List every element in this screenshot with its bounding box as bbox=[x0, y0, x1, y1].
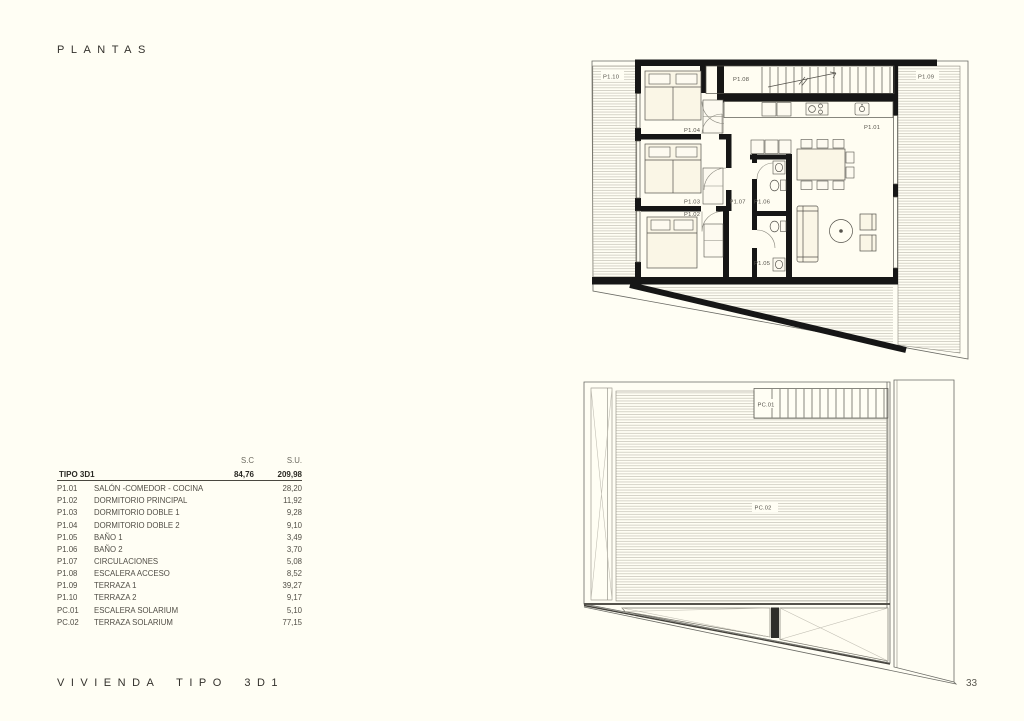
row-name: DORMITORIO DOBLE 2 bbox=[92, 521, 206, 530]
room-label-p109: P1.09 bbox=[918, 75, 934, 81]
hob-icon bbox=[806, 103, 828, 115]
row-name: TERRAZA 1 bbox=[92, 581, 206, 590]
bottom-edge-line bbox=[584, 603, 890, 605]
total-sc: 84,76 bbox=[206, 470, 254, 479]
area-table-total-row: TIPO 3D1 84,76 209,98 bbox=[57, 465, 302, 481]
row-su: 9,10 bbox=[254, 521, 302, 530]
pergola-panel-left bbox=[622, 608, 770, 637]
row-name: CIRCULACIONES bbox=[92, 557, 206, 566]
table-row: P1.06BAÑO 23,70 bbox=[57, 542, 302, 554]
row-code: P1.05 bbox=[57, 533, 92, 542]
sofa bbox=[797, 206, 818, 262]
table-row: P1.02DORMITORIO PRINCIPAL11,92 bbox=[57, 493, 302, 505]
area-table: S.C S.U. TIPO 3D1 84,76 209,98 P1.01SALÓ… bbox=[57, 452, 302, 627]
row-name: BAÑO 1 bbox=[92, 533, 206, 542]
row-name: DORMITORIO PRINCIPAL bbox=[92, 496, 206, 505]
table-row: P1.04DORMITORIO DOBLE 29,10 bbox=[57, 517, 302, 529]
room-label-p106: P1.06 bbox=[754, 200, 770, 206]
floor-plan-solarium: PC.01 PC.02 bbox=[580, 375, 975, 695]
room-label-p103: P1.03 bbox=[684, 200, 700, 206]
room-label-pc02: PC.02 bbox=[755, 506, 772, 512]
row-name: ESCALERA ACCESO bbox=[92, 569, 206, 578]
row-su: 39,27 bbox=[254, 581, 302, 590]
row-code: P1.07 bbox=[57, 557, 92, 566]
table-row: P1.01SALÓN -COMEDOR - COCINA28,20 bbox=[57, 481, 302, 493]
room-label-p108: P1.08 bbox=[733, 77, 749, 83]
bed-p102 bbox=[647, 217, 697, 268]
terrace-p109 bbox=[898, 66, 960, 353]
row-code: P1.10 bbox=[57, 593, 92, 602]
area-table-header: S.C S.U. bbox=[57, 452, 302, 465]
row-code: P1.09 bbox=[57, 581, 92, 590]
sink-icon bbox=[855, 103, 869, 115]
row-code: PC.01 bbox=[57, 606, 92, 615]
header-sc: S.C bbox=[206, 456, 254, 465]
row-su: 28,20 bbox=[254, 484, 302, 493]
room-label-p110: P1.10 bbox=[603, 75, 619, 81]
right-strip bbox=[894, 380, 954, 682]
row-code: P1.03 bbox=[57, 508, 92, 517]
page-number: 33 bbox=[966, 678, 977, 689]
terrace-p110 bbox=[593, 66, 637, 277]
room-label-pc01: PC.01 bbox=[758, 403, 775, 409]
row-su: 3,49 bbox=[254, 533, 302, 542]
panel-divider-post bbox=[771, 608, 779, 639]
row-code: P1.02 bbox=[57, 496, 92, 505]
room-label-p104: P1.04 bbox=[684, 128, 701, 134]
table-row: P1.05BAÑO 13,49 bbox=[57, 530, 302, 542]
wardrobes bbox=[703, 100, 723, 257]
row-su: 5,10 bbox=[254, 606, 302, 615]
row-code: PC.02 bbox=[57, 618, 92, 627]
hall-cabinets bbox=[751, 140, 791, 154]
total-su: 209,98 bbox=[254, 470, 302, 479]
terrace-solarium-pc02 bbox=[616, 391, 888, 601]
footer-title: VIVIENDA TIPO 3D1 bbox=[57, 677, 284, 689]
row-code: P1.08 bbox=[57, 569, 92, 578]
row-su: 77,15 bbox=[254, 618, 302, 627]
table-row: P1.08ESCALERA ACCESO8,52 bbox=[57, 566, 302, 578]
table-row: P1.10TERRAZA 29,17 bbox=[57, 590, 302, 602]
room-label-p107: P1.07 bbox=[730, 200, 746, 206]
left-braced-strip bbox=[591, 388, 612, 600]
row-code: P1.01 bbox=[57, 484, 92, 493]
table-row: PC.01ESCALERA SOLARIUM5,10 bbox=[57, 602, 302, 614]
row-name: TERRAZA 2 bbox=[92, 593, 206, 602]
document-page: PLANTAS bbox=[0, 0, 1024, 721]
row-su: 9,28 bbox=[254, 508, 302, 517]
row-name: ESCALERA SOLARIUM bbox=[92, 606, 206, 615]
row-code: P1.06 bbox=[57, 545, 92, 554]
row-su: 9,17 bbox=[254, 593, 302, 602]
room-label-p105: P1.05 bbox=[754, 261, 770, 267]
row-su: 8,52 bbox=[254, 569, 302, 578]
table-row: PC.02TERRAZA SOLARIUM77,15 bbox=[57, 615, 302, 627]
area-table-body: P1.01SALÓN -COMEDOR - COCINA28,20P1.02DO… bbox=[57, 481, 302, 627]
bed-p104 bbox=[645, 71, 701, 120]
table-row: P1.07CIRCULACIONES5,08 bbox=[57, 554, 302, 566]
table-row: P1.09TERRAZA 139,27 bbox=[57, 578, 302, 590]
row-su: 3,70 bbox=[254, 545, 302, 554]
total-name: TIPO 3D1 bbox=[57, 470, 206, 479]
row-name: BAÑO 2 bbox=[92, 545, 206, 554]
page-title: PLANTAS bbox=[57, 44, 152, 56]
row-name: TERRAZA SOLARIUM bbox=[92, 618, 206, 627]
room-label-p101: P1.01 bbox=[864, 125, 880, 131]
row-name: SALÓN -COMEDOR - COCINA bbox=[92, 484, 206, 493]
row-name: DORMITORIO DOBLE 1 bbox=[92, 508, 206, 517]
bed-p103 bbox=[645, 144, 701, 193]
row-su: 11,92 bbox=[254, 496, 302, 505]
header-su: S.U. bbox=[254, 456, 302, 465]
floor-plan-level1: P1.10 P1.08 P1.09 P1.04 P1.01 P1.03 P1.0… bbox=[585, 55, 975, 367]
table-row: P1.03DORMITORIO DOBLE 19,28 bbox=[57, 505, 302, 517]
room-label-p102: P1.02 bbox=[684, 212, 700, 218]
row-su: 5,08 bbox=[254, 557, 302, 566]
row-code: P1.04 bbox=[57, 521, 92, 530]
